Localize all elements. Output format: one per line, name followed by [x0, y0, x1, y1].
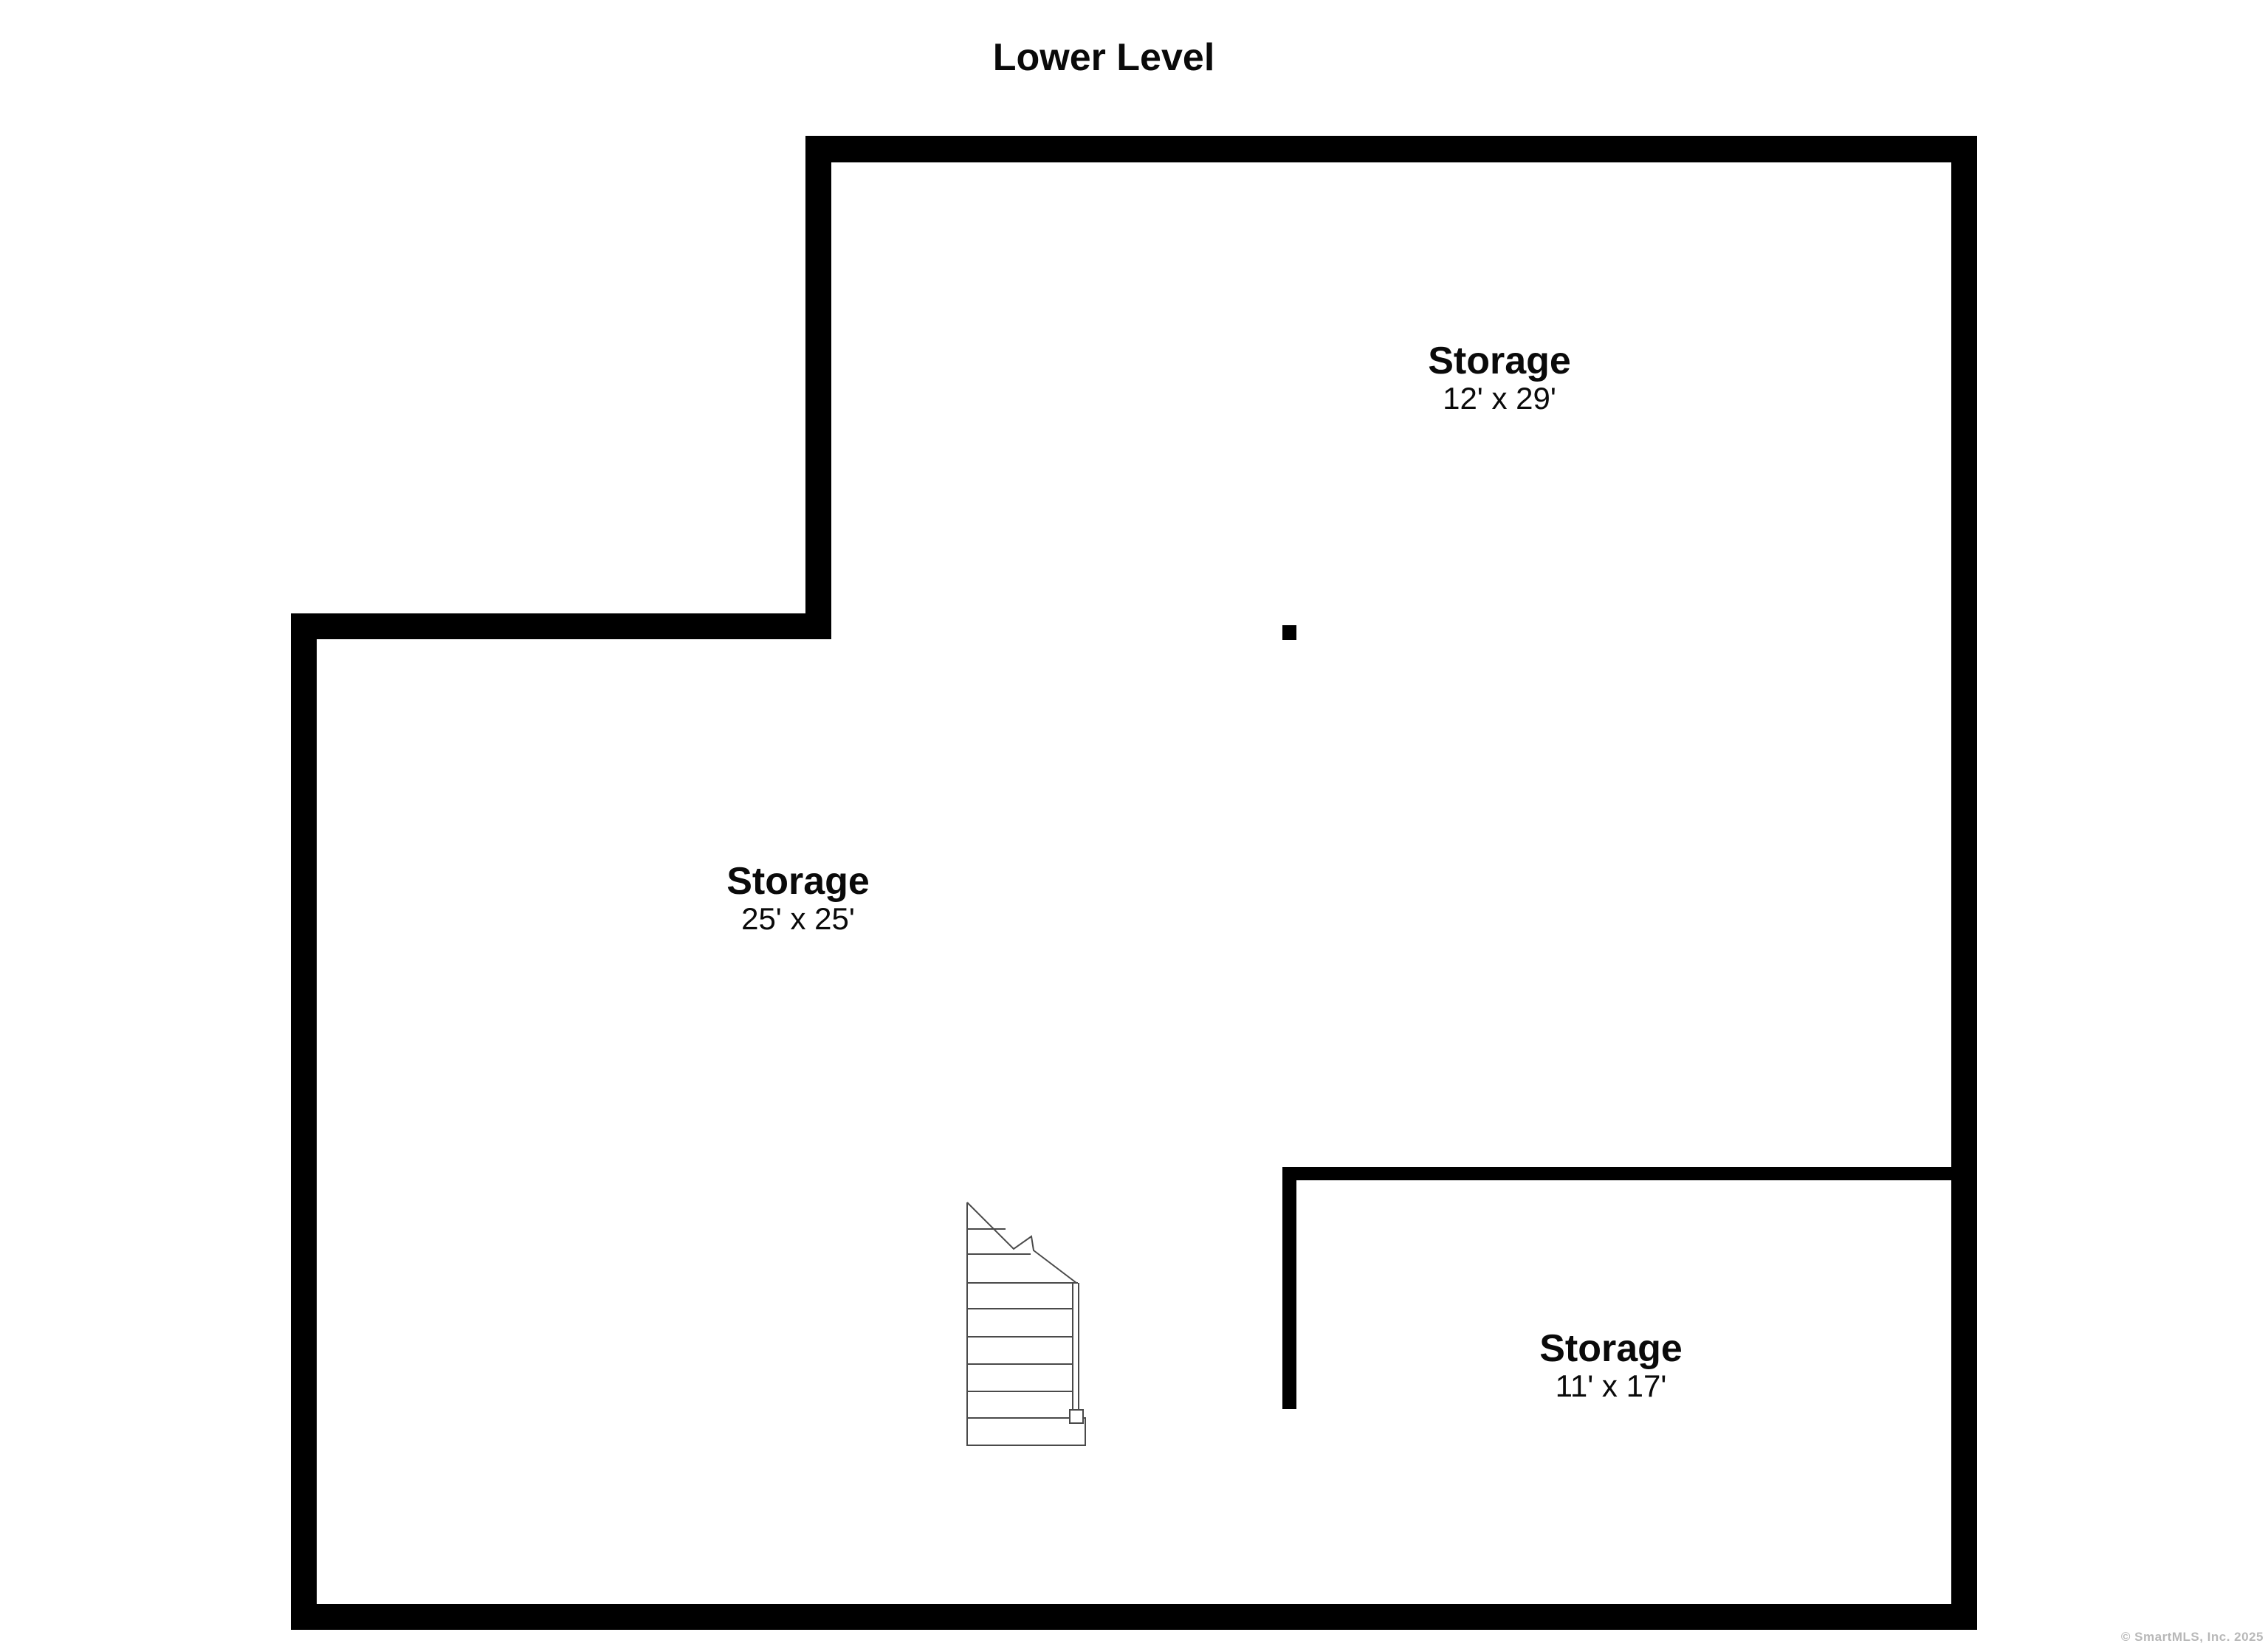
floor-plan-page: Lower Level — [0, 0, 2268, 1649]
room-name: Storage — [726, 861, 870, 901]
room-label-storage-left: Storage 25' x 25' — [726, 861, 870, 937]
room-dimensions: 12' x 29' — [1443, 381, 1556, 416]
wall-bottom — [291, 1604, 1977, 1630]
room-dimensions: 11' x 17' — [1556, 1369, 1667, 1404]
room-label-storage-lower-right: Storage 11' x 17' — [1539, 1329, 1683, 1404]
room-name: Storage — [1539, 1329, 1683, 1369]
wall-step — [291, 613, 831, 639]
wall-partition-vertical — [1282, 1167, 1296, 1409]
wall-left — [291, 613, 317, 1630]
stairs-break-line — [967, 1202, 1076, 1283]
stairs-landing — [967, 1418, 1085, 1445]
room-dimensions: 25' x 25' — [741, 901, 855, 937]
room-label-storage-upper: Storage 12' x 29' — [1428, 341, 1571, 416]
wall-upper-left — [805, 136, 831, 639]
wall-right — [1951, 136, 1977, 1630]
exterior-walls — [291, 136, 1977, 1630]
wall-post — [1282, 625, 1296, 640]
floor-plan-drawing — [0, 0, 2268, 1649]
room-name: Storage — [1428, 341, 1571, 381]
stairs-newel-post — [1070, 1410, 1083, 1423]
stairs-icon — [967, 1202, 1085, 1445]
wall-top — [805, 136, 1977, 162]
interior-walls — [1282, 625, 1951, 1409]
copyright-notice: © SmartMLS, Inc. 2025 — [2121, 1630, 2264, 1645]
wall-partition-horizontal — [1282, 1167, 1951, 1180]
